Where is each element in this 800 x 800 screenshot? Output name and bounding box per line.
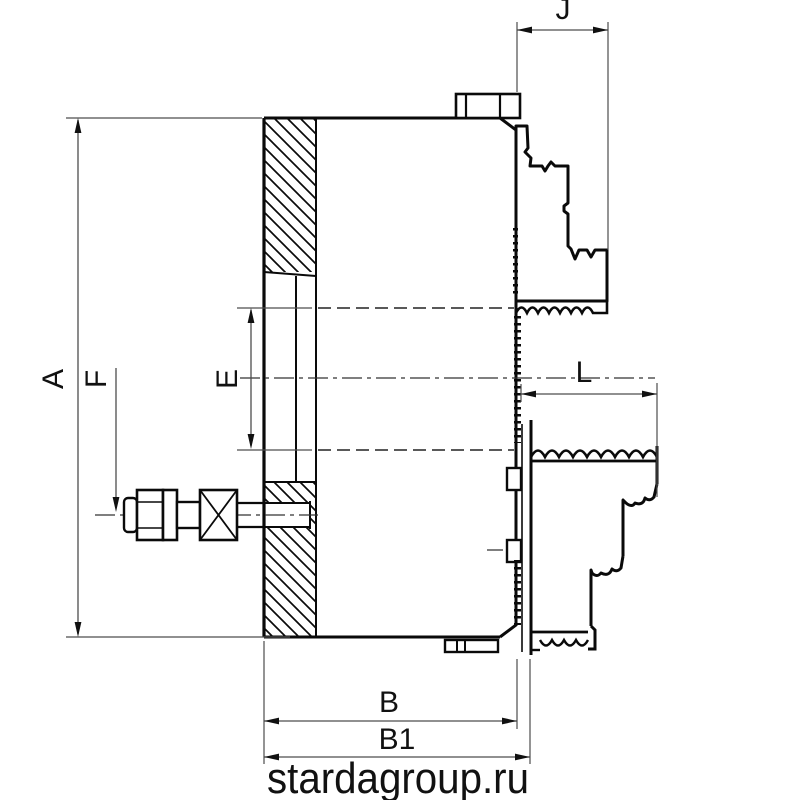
background xyxy=(0,0,800,800)
dim-label-e: E xyxy=(211,369,244,389)
bottom-mount-block xyxy=(445,640,498,652)
hatch-lower xyxy=(264,527,316,637)
jaw-key-lug-lower xyxy=(507,540,521,562)
bolt-hex-head xyxy=(137,490,163,540)
dim-label-f: F xyxy=(80,370,113,388)
hatch-upper xyxy=(264,118,316,272)
jaw-key-lug-upper xyxy=(507,468,521,490)
dim-label-b1: B1 xyxy=(379,723,416,756)
dim-label-l: L xyxy=(576,356,593,389)
technical-drawing-lathe-chuck-section: A F E J L B xyxy=(0,0,800,800)
bolt-end-cap xyxy=(124,498,137,532)
dim-label-j: J xyxy=(556,0,571,26)
drawing-canvas: A F E J L B xyxy=(0,0,800,800)
watermark: stardagroup.ru xyxy=(267,754,529,800)
dim-label-a: A xyxy=(37,369,70,389)
bolt-collar xyxy=(163,490,177,540)
dim-label-b: B xyxy=(379,686,399,719)
bolt-neck xyxy=(177,502,200,528)
hatch-mid xyxy=(264,482,316,503)
